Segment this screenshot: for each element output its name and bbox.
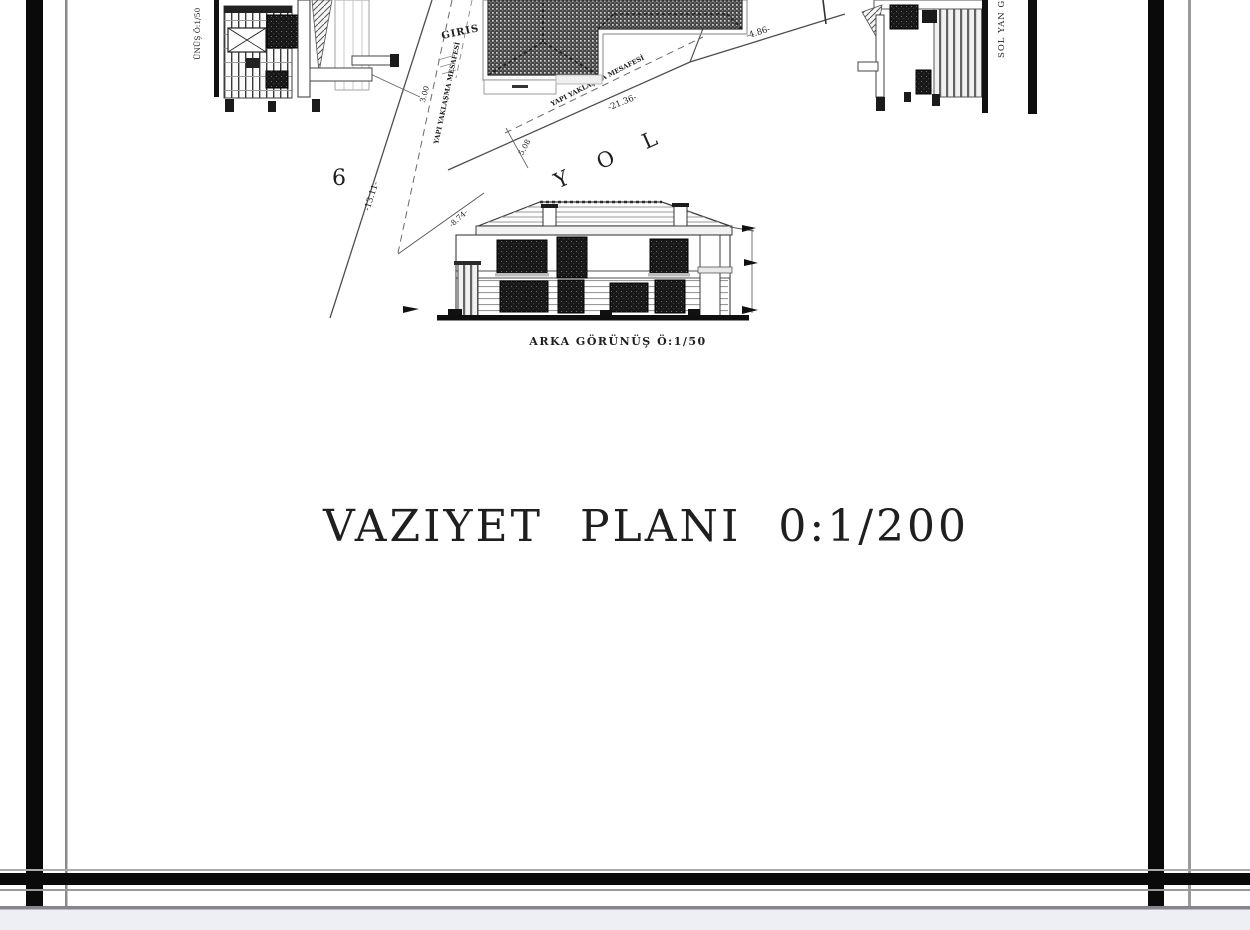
elevation-right-label: SOL YAN G [997,0,1007,58]
frame-left-thick [26,0,43,910]
architectural-sheet: 6 GIRIS Y O L YAPI YAKLAŞMA MESAFESİ YAP… [0,0,1250,930]
lower-window-4 [655,280,685,313]
ground-line-right [982,0,988,113]
footing-1 [225,99,234,112]
frame-bottom-thin-lower [0,889,1250,891]
viewer-bottom-strip [0,910,1250,930]
plot-number: 6 [332,166,346,191]
frame-bottom-thick [0,873,1250,885]
window-hatched-3 [890,5,918,29]
footing-4 [876,97,885,111]
site-plan-drawing: 6 GIRIS Y O L YAPI YAKLAŞMA MESAFESİ YAP… [0,0,1250,930]
footing-3 [312,99,320,112]
upper-window-1 [497,240,547,274]
chimney-1-cap [541,204,558,208]
lower-window-2 [558,280,584,313]
railing-cap [224,6,292,13]
window-small [246,58,260,68]
ground-line [214,0,219,97]
siding [934,9,984,97]
terrace-step [556,75,602,84]
upper-window-2 [557,237,587,278]
envelope-shape [228,28,266,52]
terrace-mark [512,85,528,88]
footing-2 [268,101,276,112]
frame-bottom-thin-upper [0,869,1250,871]
beam-2 [352,56,396,65]
frame-right-thin [1188,0,1191,910]
vent-3 [688,309,700,315]
window-hatched-4 [916,70,931,94]
window-hatched-2 [266,71,288,88]
vent-1 [448,309,462,315]
sheet-title: VAZIYET PLANI 0:1/200 [322,501,969,552]
frame-left-thin [65,0,68,910]
balcony-slab [698,267,732,273]
beam [310,68,372,81]
lower-window-3 [610,283,648,312]
lower-window-1 [500,281,548,312]
left-pier-cap [454,261,481,265]
footing-6 [932,94,940,106]
chimney-1 [543,206,556,226]
chimney-2-cap [672,203,689,207]
chimney-2 [674,205,687,226]
upper-window-3 [650,239,688,274]
sill-1 [495,273,549,277]
beam-end [390,54,399,67]
fold-mark-bar [1028,0,1037,114]
window-dark [922,10,937,23]
ground [437,315,749,321]
footing-5 [904,92,911,102]
elevation-rear-label: ARKA GÖRÜNÜŞ Ö:1/50 [528,334,706,348]
lower-siding [458,279,728,315]
elevation-left-label: ÜNÜŞ Ö:1/50 [193,8,202,60]
fascia [476,226,732,235]
photo-edge-line [0,906,1250,910]
vent-2 [600,310,612,315]
column-right [876,15,884,97]
left-pier [458,264,478,316]
frame-right-thick [1148,0,1164,910]
beam-right [858,62,878,71]
sill-2 [648,273,690,277]
right-pier [700,235,720,316]
column [298,0,310,97]
